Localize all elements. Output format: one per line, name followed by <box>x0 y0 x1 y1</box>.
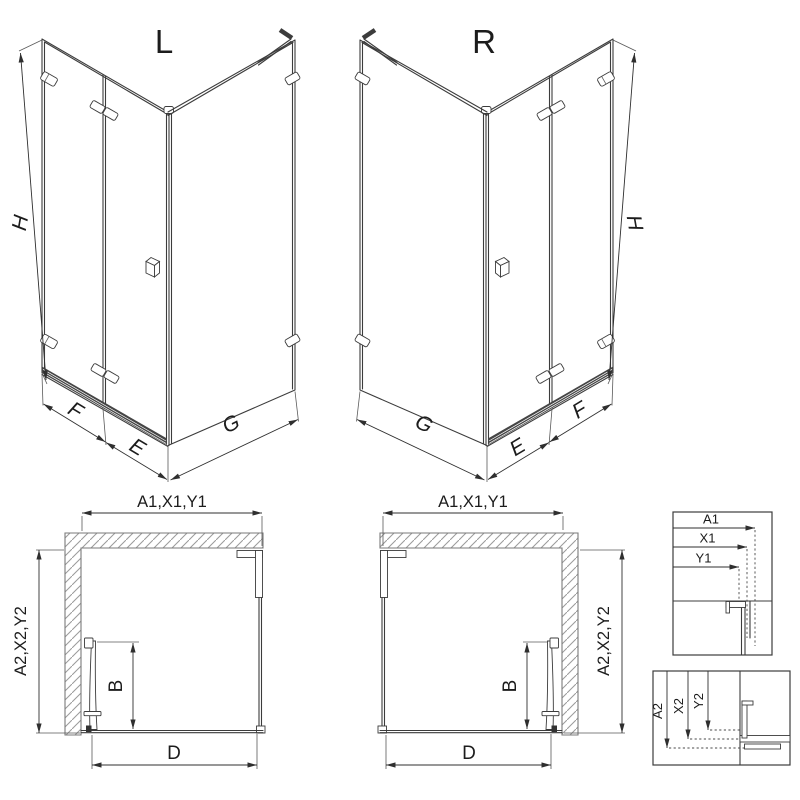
h-dim-label-right: H <box>622 213 647 233</box>
technical-drawing-page: L <box>0 0 800 800</box>
corner-profile <box>484 111 489 446</box>
threshold-sill <box>380 731 562 733</box>
door-leaf-open <box>542 638 559 732</box>
door-divider <box>103 75 106 409</box>
threshold-rail <box>42 367 167 446</box>
plan-view-right: A1,X1,Y1 A2,X2,Y2 B D <box>378 493 625 769</box>
threshold-rail <box>488 367 613 446</box>
profile-section <box>726 601 750 655</box>
shower-enclosure-drawing: L <box>0 0 800 800</box>
door-hinge-icon <box>102 107 118 121</box>
plan-left-door-width-label: B <box>106 680 127 693</box>
wall-hinge-icon <box>597 71 615 87</box>
profile-section <box>740 701 790 749</box>
glass-panels-right-variant <box>360 39 613 447</box>
plan-right-width-label: A1,X1,Y1 <box>438 493 508 511</box>
pivot-block <box>552 726 558 733</box>
detail-y1-label: Y1 <box>696 551 712 566</box>
wall-bracket-icon <box>284 334 300 348</box>
hinges-left-variant <box>40 71 301 384</box>
wall-hinge-icon <box>40 71 58 87</box>
door-divider <box>550 75 553 409</box>
f-dim-label-right: F <box>568 397 592 424</box>
variant-label-left: L <box>155 23 173 60</box>
wall-bracket-icon <box>284 72 300 86</box>
detail-y2-label: Y2 <box>691 693 706 709</box>
detail-a1-label: A1 <box>703 512 719 527</box>
plan-view-left: A1,X1,Y1 A2,X2,Y2 B D <box>12 493 265 769</box>
pivot-block <box>86 726 92 733</box>
plan-left-depth-label: A2,X2,Y2 <box>12 606 30 676</box>
detail-vertical-offsets: A2 X2 Y2 <box>650 671 790 765</box>
plan-right-depth-label: A2,X2,Y2 <box>595 606 613 676</box>
door-leaf-open <box>84 638 101 732</box>
wall-bracket-icon <box>354 334 370 348</box>
detail-a2-label: A2 <box>650 703 665 719</box>
e-dim-label-right: E <box>506 433 531 460</box>
h-dim-label-left: H <box>8 213 33 233</box>
threshold-sill <box>81 731 263 733</box>
door-handle <box>84 712 101 716</box>
door-handle <box>542 712 559 716</box>
hinges-right-variant <box>354 71 615 384</box>
door-hinge-icon <box>536 107 552 121</box>
door-handle <box>146 258 160 278</box>
wall-bracket-icon <box>354 72 370 86</box>
f-dim-label-left: F <box>64 397 88 424</box>
plan-right-door-width-label: B <box>500 680 521 693</box>
door-handle <box>496 258 510 278</box>
glass-side-panel <box>378 551 406 734</box>
plan-left-width-label: A1,X1,Y1 <box>137 493 207 511</box>
door-hinge-icon <box>85 638 94 648</box>
detail-x2-label: X2 <box>671 698 686 714</box>
e-dim-label-left: E <box>125 434 150 461</box>
door-hinge-icon <box>550 638 559 648</box>
glass-side-panel <box>237 551 265 734</box>
iso-view-right: R <box>354 23 647 482</box>
detail-x1-label: X1 <box>700 531 716 546</box>
plan-right-entry-label: D <box>462 743 476 764</box>
corner-profile <box>167 111 172 446</box>
glass-panels-left-variant <box>42 39 295 447</box>
iso-view-left: L <box>8 23 301 482</box>
variant-label-right: R <box>472 23 496 60</box>
plan-left-entry-label: D <box>167 743 181 764</box>
detail-horizontal-offsets: A1 X1 Y1 <box>673 512 772 656</box>
